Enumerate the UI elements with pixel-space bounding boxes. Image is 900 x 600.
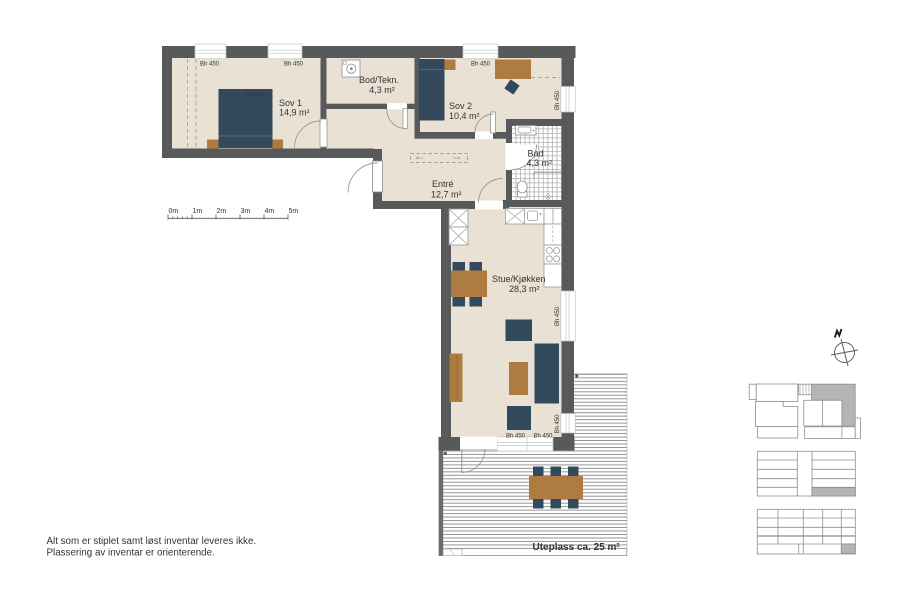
svg-text:Bh 450: Bh 450 xyxy=(555,306,561,326)
svg-text:Bh 450: Bh 450 xyxy=(534,434,554,440)
svg-text:Bh 450: Bh 450 xyxy=(555,90,561,110)
svg-text:Bod/Tekn.: Bod/Tekn. xyxy=(359,75,399,85)
svg-text:Uteplass ca. 25 m²: Uteplass ca. 25 m² xyxy=(533,542,621,553)
svg-text:2m: 2m xyxy=(217,208,227,215)
svg-text:0m: 0m xyxy=(169,208,179,215)
svg-text:Sov 2: Sov 2 xyxy=(449,101,472,111)
svg-text:Bh 450: Bh 450 xyxy=(471,62,491,68)
svg-text:14,9 m²: 14,9 m² xyxy=(279,108,310,118)
svg-text:4,3 m²: 4,3 m² xyxy=(527,158,553,168)
svg-text:Entré: Entré xyxy=(432,179,454,189)
svg-text:12,7 m²: 12,7 m² xyxy=(431,190,462,200)
svg-text:3m: 3m xyxy=(241,208,251,215)
svg-text:Plassering av inventar er orie: Plassering av inventar er orienterende. xyxy=(47,547,215,558)
svg-text:4m: 4m xyxy=(265,208,275,215)
svg-text:Stue/Kjøkken: Stue/Kjøkken xyxy=(492,274,546,284)
svg-text:1m: 1m xyxy=(193,208,203,215)
svg-text:28,3 m²: 28,3 m² xyxy=(509,284,540,294)
svg-text:180x200: 180x200 xyxy=(245,92,263,97)
svg-text:Alt som er stiplet samt løst i: Alt som er stiplet samt løst inventar le… xyxy=(47,536,257,547)
svg-text:Bh 450: Bh 450 xyxy=(506,434,526,440)
svg-text:10,4 m²: 10,4 m² xyxy=(449,111,480,121)
svg-text:Bh 450: Bh 450 xyxy=(555,414,561,434)
svg-text:5m: 5m xyxy=(289,208,299,215)
svg-text:Bad: Bad xyxy=(528,149,544,159)
svg-text:Sov 1: Sov 1 xyxy=(279,98,302,108)
svg-text:4,3 m²: 4,3 m² xyxy=(369,85,395,95)
svg-text:Bh 450: Bh 450 xyxy=(284,62,304,68)
svg-text:Bh 450: Bh 450 xyxy=(200,62,220,68)
